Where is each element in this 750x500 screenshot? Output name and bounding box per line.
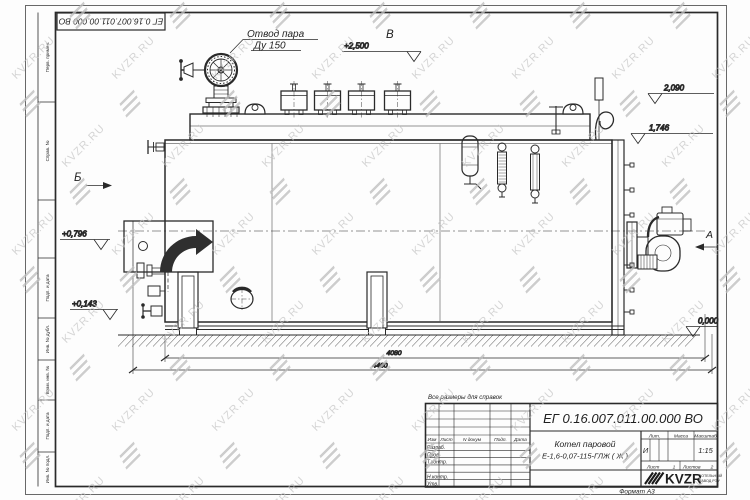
gauge-siphon-loop	[595, 112, 613, 140]
boiler-general-view-drawing: ЕГ 0.16.007.011.00.000 ВО Перв. примен. …	[0, 0, 750, 500]
scale-label: Масштаб	[694, 433, 717, 439]
boiler-body	[118, 114, 706, 347]
elevation-marks: +2,500 2,090 1,746 +0,796 +0,143 0,000	[60, 42, 719, 337]
safety-valve-box	[385, 81, 411, 118]
view-label-v: В	[386, 29, 394, 41]
col-podp: Подп.	[494, 437, 507, 443]
company-tagline-2: ЗАВОД РЭУ	[699, 479, 720, 483]
row-tkontr: Т.контр.	[427, 460, 447, 466]
dim-4080: 4080	[386, 350, 401, 357]
product-name: Котел паровой	[555, 439, 616, 449]
view-label-a: А	[705, 229, 713, 241]
elev-0000: 0,000	[698, 317, 719, 326]
elev-2500: +2,500	[344, 42, 369, 51]
row-razrab: Разраб.	[427, 445, 445, 451]
elev-2090: 2,090	[663, 84, 685, 93]
row-nkontr: Н.контр.	[427, 474, 448, 480]
support-leg	[367, 272, 387, 335]
margin-label: Перв. примен.	[45, 42, 50, 73]
col-ndokum: N докум	[463, 437, 482, 443]
steam-drum	[190, 114, 590, 140]
view-arrow-a	[695, 244, 704, 251]
kvzr-logo-text: KVZR	[665, 472, 702, 487]
sheet-label: Лист	[646, 464, 659, 470]
lit-value: И	[643, 446, 649, 455]
callout-text-line2: Ду 150	[253, 41, 286, 52]
dimensions: 4080 4460	[129, 276, 716, 374]
margin-labels: Перв. примен. Справ. № Подп. и дата Инв.…	[45, 42, 50, 484]
product-model: Е-1,6-0,07-115-ГЛЖ ( Ж )	[542, 452, 628, 461]
margin-label: Инв. № подл.	[45, 455, 50, 484]
dim-4460: 4460	[372, 363, 387, 370]
view-label-b: Б	[74, 172, 82, 184]
level-vessel	[462, 136, 478, 176]
blower-assembly	[627, 207, 691, 271]
safety-valve-box	[315, 81, 341, 118]
company-tagline-1: КОТЕЛЬНЫЙ	[699, 474, 722, 478]
steam-outlet-callout: Отвод пара Ду 150	[230, 29, 318, 53]
lit-label: Лит.	[648, 433, 660, 439]
doc-number: ЕГ 0.16.007.011.00.000 ВО	[543, 411, 703, 426]
ground-hatching	[118, 335, 696, 347]
view-arrow-b	[103, 182, 112, 189]
safety-valve-box	[281, 81, 307, 118]
sheet-value: 1	[673, 464, 676, 470]
tube-sheet-bolts	[624, 163, 634, 314]
elev-1746: 1,746	[649, 124, 670, 133]
margin-label: Подп. и дата	[45, 412, 50, 440]
top-stamp-doc-number: ЕГ 0.16.007.011.00.000 ВО	[58, 17, 163, 27]
margin-label: Подп. и дата	[45, 274, 50, 302]
margin-label: Инв. № дубл.	[45, 325, 50, 353]
row-utv: Утв.	[427, 482, 438, 488]
shell-fittings	[137, 140, 165, 318]
row-prov: Пров.	[427, 452, 440, 458]
safety-valve-boxes	[281, 81, 411, 118]
elev-0143: +0,143	[72, 300, 97, 309]
sheets-label: Листов	[682, 464, 701, 470]
thermometer	[595, 78, 603, 100]
support-leg	[178, 272, 198, 335]
col-izm: Изм	[428, 437, 438, 443]
bypass-valve	[184, 63, 193, 77]
lifting-lugs	[245, 104, 583, 114]
sheets-value: 2	[710, 464, 714, 470]
water-gauge-glass	[531, 145, 540, 203]
burner-box	[124, 221, 213, 292]
massa-label: Масса	[674, 433, 689, 439]
water-gauge-glass	[498, 143, 507, 197]
col-data: Дата	[513, 437, 527, 443]
reference-note: Все размеры для справок	[428, 394, 503, 401]
format-label: Формат А3	[619, 489, 655, 496]
kvzr-logo-mark	[645, 473, 664, 485]
manhole	[231, 288, 253, 310]
margin-label: Взам. инв. №	[45, 366, 50, 395]
callout-text-line1: Отвод пара	[247, 29, 305, 40]
steam-outlet-valve	[180, 54, 239, 117]
fan-motor	[657, 213, 683, 235]
elev-0796: +0,796	[62, 230, 87, 239]
company-logo: KVZR КОТЕЛЬНЫЙ ЗАВОД РЭУ	[645, 472, 722, 487]
col-list: Лист	[439, 437, 452, 443]
drawing-sheet: ЕГ 0.16.007.011.00.000 ВО Перв. примен. …	[0, 0, 750, 500]
margin-label: Справ. №	[45, 141, 50, 162]
safety-valve-box	[349, 81, 375, 118]
scale-value: 1:15	[698, 446, 713, 455]
